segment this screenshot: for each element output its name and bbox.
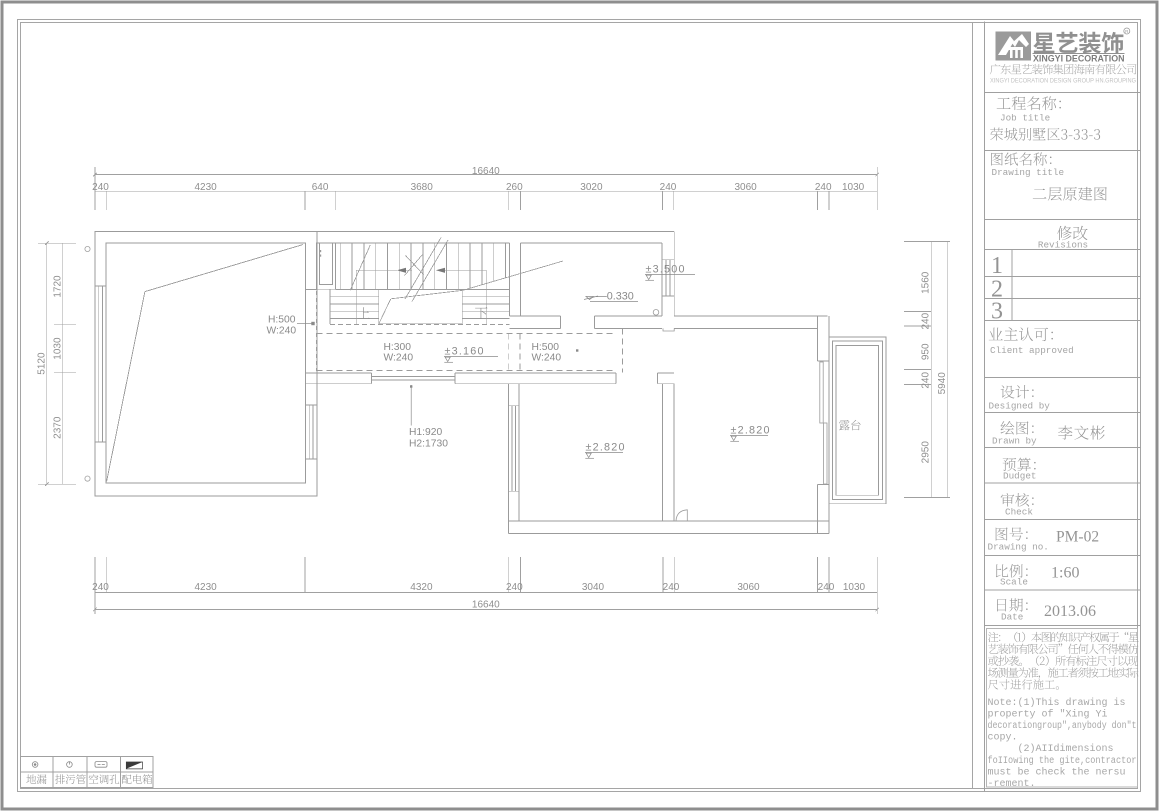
svg-text:±2.820: ±2.820 — [586, 442, 626, 454]
svg-text:240: 240 — [920, 372, 931, 389]
svg-text:1030: 1030 — [843, 582, 866, 593]
svg-text:XINGYI DECORATION DESIGN GROUP: XINGYI DECORATION DESIGN GROUP HN.GROUPI… — [990, 77, 1136, 84]
svg-text:Date: Date — [1001, 612, 1023, 623]
svg-text:Designed by: Designed by — [989, 401, 1051, 412]
svg-text:1: 1 — [991, 253, 1003, 279]
svg-text:Drawing no.: Drawing no. — [988, 542, 1049, 553]
svg-text:PM-02: PM-02 — [1056, 529, 1099, 546]
svg-text:H2:1730: H2:1730 — [409, 438, 448, 449]
svg-text:5940: 5940 — [937, 372, 948, 395]
svg-text:240: 240 — [92, 582, 109, 593]
svg-text:5120: 5120 — [37, 352, 48, 375]
svg-text:4230: 4230 — [194, 582, 217, 593]
svg-text:240: 240 — [818, 582, 835, 593]
svg-text:(2)AIIdimensions: (2)AIIdimensions — [988, 743, 1114, 755]
svg-text:XINGYI DECORATION: XINGYI DECORATION — [1033, 54, 1125, 64]
svg-text:1030: 1030 — [53, 337, 64, 360]
svg-text:3040: 3040 — [582, 582, 605, 593]
svg-text:copy.: copy. — [988, 733, 1018, 744]
svg-text:Note:(1)This drawing is: Note:(1)This drawing is — [988, 697, 1126, 709]
svg-text:3020: 3020 — [580, 182, 603, 193]
svg-text:1720: 1720 — [53, 275, 64, 298]
svg-text:±3.500: ±3.500 — [646, 264, 686, 276]
svg-text:4230: 4230 — [194, 182, 217, 193]
svg-text:foIIowing the gite,contractor: foIIowing the gite,contractor — [988, 755, 1137, 767]
svg-text:decorationgroup″,anybody don″t: decorationgroup″,anybody don″t — [988, 720, 1137, 732]
svg-text:W:240: W:240 — [532, 352, 562, 363]
svg-text:2950: 2950 — [920, 441, 931, 464]
svg-text:4320: 4320 — [410, 582, 433, 593]
svg-text:1560: 1560 — [920, 271, 931, 294]
svg-text:Drawing title: Drawing title — [992, 167, 1065, 178]
svg-text:950: 950 — [920, 343, 931, 360]
svg-text:Revisions: Revisions — [1038, 240, 1088, 251]
svg-text:H1:920: H1:920 — [409, 427, 442, 438]
svg-text:W:240: W:240 — [267, 326, 297, 337]
svg-text:—0.330: —0.330 — [596, 291, 634, 303]
svg-text:240: 240 — [506, 582, 523, 593]
svg-text:property of ″Xing Yi: property of ″Xing Yi — [988, 709, 1108, 721]
svg-text:3060: 3060 — [737, 582, 760, 593]
svg-text:260: 260 — [506, 182, 523, 193]
svg-text:2370: 2370 — [53, 416, 64, 439]
svg-text:240: 240 — [663, 582, 680, 593]
svg-text:240: 240 — [660, 182, 677, 193]
svg-text:240: 240 — [920, 312, 931, 329]
svg-text:Scale: Scale — [1000, 577, 1028, 588]
svg-text:16640: 16640 — [472, 166, 500, 177]
svg-text:H:300: H:300 — [384, 342, 412, 353]
svg-text:3060: 3060 — [734, 182, 757, 193]
svg-text:must be check the nersu: must be check the nersu — [988, 766, 1126, 778]
svg-text:±2.820: ±2.820 — [731, 425, 771, 437]
svg-text:2013.06: 2013.06 — [1044, 603, 1096, 620]
svg-text:3680: 3680 — [411, 182, 434, 193]
svg-text:Check: Check — [1005, 507, 1033, 518]
svg-text:H:500: H:500 — [532, 342, 560, 353]
svg-text:Dudget: Dudget — [1003, 471, 1036, 482]
svg-text:±3.160: ±3.160 — [445, 346, 485, 358]
svg-text:Drawn by: Drawn by — [992, 436, 1037, 447]
svg-text:640: 640 — [312, 182, 329, 193]
svg-text:Client approved: Client approved — [990, 345, 1074, 356]
svg-text:1:60: 1:60 — [1051, 565, 1079, 582]
svg-text:-rement.: -rement. — [988, 779, 1036, 790]
svg-text:1030: 1030 — [842, 182, 865, 193]
svg-text:240: 240 — [815, 182, 832, 193]
svg-text:W:240: W:240 — [384, 352, 414, 363]
svg-text:H:500: H:500 — [268, 315, 296, 326]
svg-text:240: 240 — [92, 182, 109, 193]
svg-text:16640: 16640 — [472, 600, 500, 611]
svg-text:Job title: Job title — [1000, 113, 1050, 124]
